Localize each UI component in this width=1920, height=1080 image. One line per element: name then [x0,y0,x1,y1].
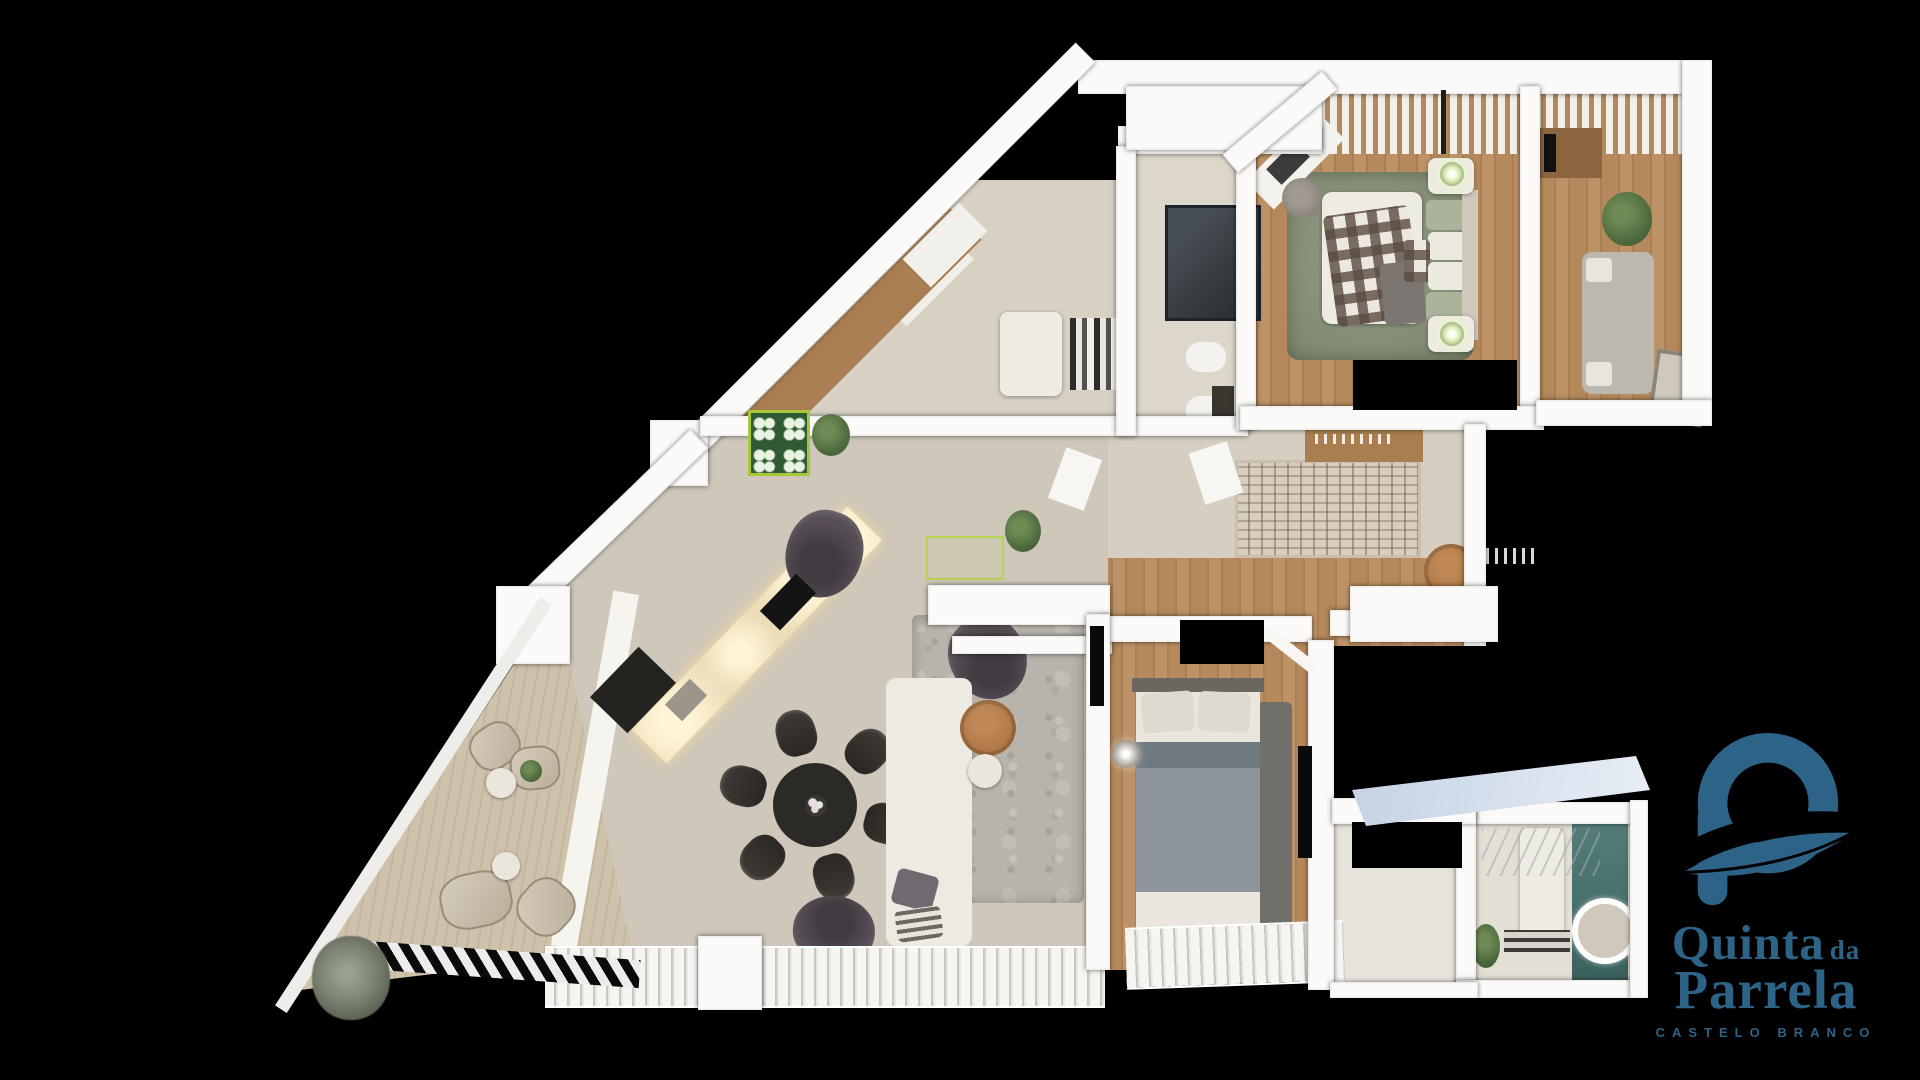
bath2-towel-rack [1504,930,1570,952]
wall-corridor-bottom [1330,982,1478,998]
master-lamp-2 [1440,322,1464,346]
coffee-table-white [968,754,1002,788]
logo-name: Quintada Parrela [1672,920,1861,1016]
terrace-table-1 [486,768,516,798]
pergola-slats [1318,90,1700,154]
window-bedroom2-top [1180,620,1264,664]
master-lamp-1 [1440,162,1464,186]
bidet1 [1186,342,1226,372]
tv-living-slot [1090,626,1104,706]
wall-right [1682,60,1712,426]
hall-decor-sparkle [1486,548,1534,564]
bedroom2-tv [1298,746,1312,858]
logo: Quintada Parrela CASTELO BRANCO [1648,722,1884,1040]
wall-entry-band [1350,586,1498,642]
sofa-room-plant [1602,192,1652,246]
pergola-divider [1441,90,1446,154]
floorplan [0,0,1920,1080]
master-desk-chair [1282,178,1322,218]
terrace-tree [312,936,390,1020]
hall-console-decor [1315,434,1395,444]
sofa-room-tv [1544,134,1556,172]
bath2-mirror [1572,898,1638,964]
wall-bath1-left [1116,146,1136,436]
floorplan-scene: Quintada Parrela CASTELO BRANCO [0,0,1920,1080]
kitchen-wine-rack [748,410,810,476]
window-master-bottom [1353,360,1517,410]
master-pillow-plaid [1404,240,1430,282]
bedroom2-duvet-fold [1136,742,1260,768]
sofa-pillow-striped [894,905,944,943]
shutter-pillar [698,936,762,1010]
wall-bath2-bottom [1456,980,1646,998]
hall-plant [1005,510,1041,552]
logo-line2: Parrela [1672,965,1861,1016]
corridor-plant [1472,924,1500,968]
hallway-boho-runner [1235,460,1421,558]
q-wave-icon [1677,722,1855,920]
bath2-shower-glass [1482,828,1600,876]
wall-bath2-right [1630,800,1648,998]
bedroom2-pillow-1 [1141,690,1196,734]
bedroom2-pillow-2 [1197,691,1251,734]
master-pillow-green-1 [1426,200,1466,230]
wall-living-north [928,585,1110,625]
closet-cabinet [1000,312,1062,396]
sofa-room-pillow-1 [1586,258,1612,282]
logo-subtitle: CASTELO BRANCO [1656,1025,1877,1040]
bedroom2-headboard [1132,678,1264,692]
wall-master-west [1236,144,1256,430]
wall-master-sofa-divider [1520,86,1540,410]
wall-sofa-room-bottom [1536,400,1712,426]
sofa-room-pillow-2 [1586,362,1612,386]
bath1-cabinet [1212,386,1234,418]
opening-corridor [1352,822,1462,868]
bedroom2-floor-lamp [1112,740,1140,768]
coffee-table-wood [960,700,1016,756]
terrace-plant-1 [520,760,542,782]
dining-flowers [805,795,827,817]
kitchen-hanging-plant [812,414,850,456]
green-glass-shelf [926,536,1004,580]
terrace-table-2 [492,852,520,880]
